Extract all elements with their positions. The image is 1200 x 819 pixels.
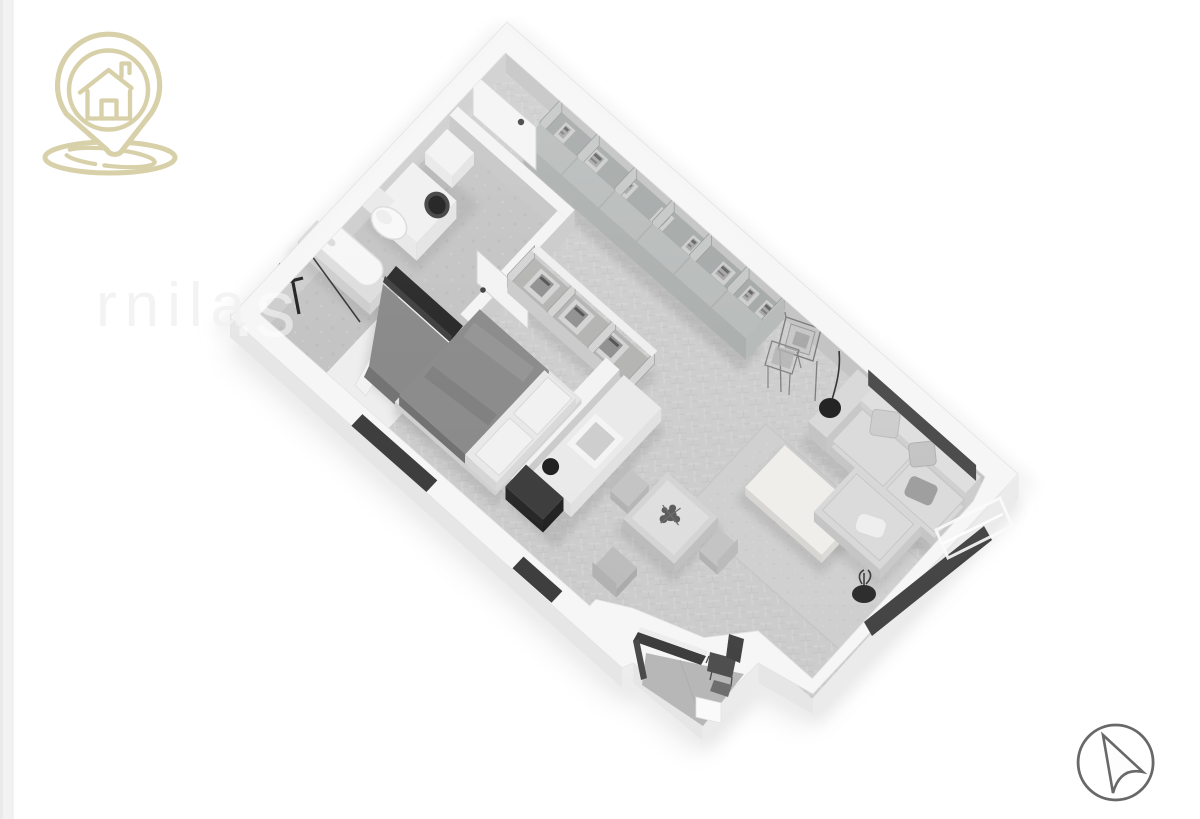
svg-text:rnila: rnila <box>96 271 253 340</box>
svg-text:.s: .s <box>232 263 296 354</box>
